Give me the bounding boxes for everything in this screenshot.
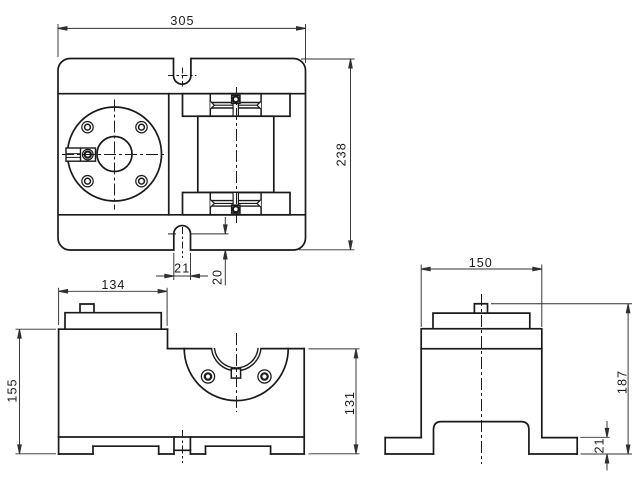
svg-text:20: 20 — [210, 269, 224, 285]
svg-text:21: 21 — [174, 262, 190, 276]
svg-text:238: 238 — [334, 142, 348, 166]
svg-text:150: 150 — [469, 256, 493, 270]
svg-text:187: 187 — [615, 370, 629, 394]
svg-text:305: 305 — [170, 14, 194, 28]
svg-text:131: 131 — [343, 391, 357, 415]
svg-text:134: 134 — [101, 278, 125, 292]
svg-text:155: 155 — [6, 378, 20, 402]
svg-text:21: 21 — [593, 437, 607, 453]
